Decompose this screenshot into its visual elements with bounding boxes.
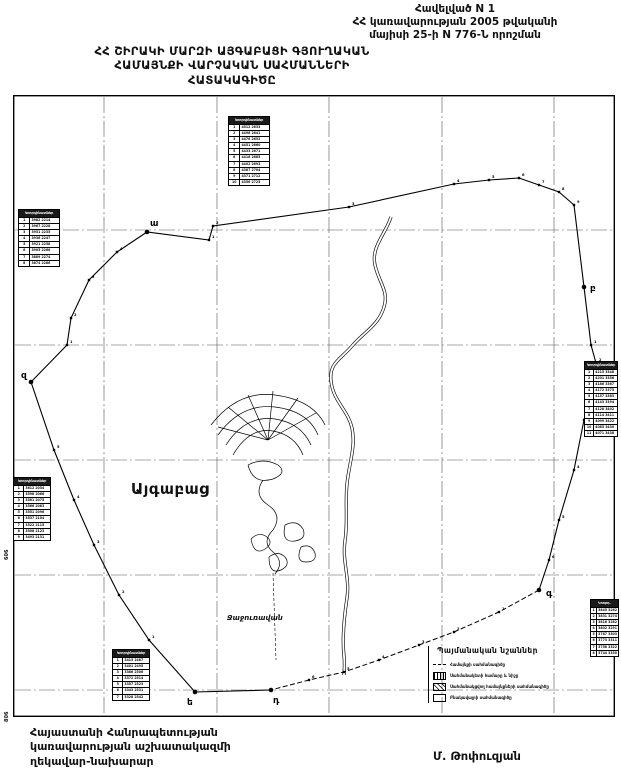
boundary-point-number: 2	[74, 313, 77, 317]
boundary-point-number: 1	[152, 635, 155, 639]
boundary-vertex-letter: բ	[590, 284, 596, 294]
boundary-point-number: 1	[212, 235, 215, 239]
boundary-point-number: 4	[577, 465, 580, 469]
legend-item-label: Բնակավայրի սահմանագիծը	[450, 695, 512, 700]
legend-item: Սահմանակցվող համայնքների սահմանագիծը	[433, 681, 617, 692]
boundary-point-number: 8	[562, 187, 565, 191]
boundary-point-number: 3	[92, 275, 95, 279]
boundary-vertex-letter: զ	[21, 371, 28, 381]
boundary-point-number: 6	[552, 555, 555, 559]
boundary-point-number: 1	[594, 340, 597, 344]
boundary-point-number: 4	[120, 247, 123, 251]
grid-coordinate-label: 806	[4, 712, 10, 722]
page-title-line2: ՀԱՄԱՅՆՔԻ ՎԱՐՉԱԿԱՆ ՍԱՀՄԱՆՆԵՐԻ	[58, 58, 406, 72]
boundary-point-number: 2	[216, 221, 219, 225]
coord-table: Կոորդինատներ13612 205423598 206633581 20…	[13, 477, 51, 541]
boundary-point-number: 6	[522, 173, 525, 177]
boundary-point-number: 5	[492, 175, 495, 179]
legend-item-label: Համայնքի սահմանագիծը	[450, 662, 505, 667]
boundary-point-number: 1	[70, 340, 73, 344]
signatory-title-line2: կառավարության աշխատակազմի	[30, 740, 231, 754]
coord-table: Կոորդինատներ14215 334824201 335634186 33…	[584, 361, 618, 437]
decree-header: Հավելված N 1 ՀՀ կառավարության 2005 թվակա…	[288, 3, 621, 41]
decree-header-line2: ՀՀ կառավարության 2005 թվականի	[288, 16, 621, 29]
grid-coordinate-label: 606	[4, 550, 10, 560]
map-svg: ա123456789բ123456գ123456դե12345զ1234	[13, 95, 615, 717]
boundary-point-number: 4	[77, 495, 80, 499]
page-title: ՀՀ ՇԻՐԱԿԻ ՄԱՐԶԻ ԱՅԳԱԲԱՑԻ ԳՅՈՒՂԱԿԱՆ ՀԱՄԱՅ…	[58, 44, 406, 87]
community-name-label: Այգաբաց	[131, 480, 209, 498]
boundary-point-number: 3	[422, 640, 425, 644]
boundary-point-number: 3	[97, 540, 100, 544]
coord-table: Կոորդինատներ14512 263324498 264134476 26…	[228, 116, 270, 186]
river	[331, 217, 391, 675]
boundary-vertex-letter: ե	[187, 698, 193, 708]
coordinate-grid	[15, 97, 613, 715]
legend-item-label: Սահմանակցվող համայնքների սահմանագիծը	[450, 684, 549, 689]
signatory-name: Մ. Թոփուզյան	[433, 749, 521, 763]
legend-title: Պայմանական նշաններ	[437, 646, 617, 655]
sym-boundary-point-icon	[433, 672, 446, 680]
boundary-vertex-letter: դ	[273, 696, 280, 706]
boundary-point-number: 5	[562, 515, 565, 519]
boundary-point-number: 4	[457, 179, 460, 183]
boundary-point-number: 2	[457, 627, 460, 631]
community-boundary: ա123456789բ123456գ123456դե12345զ1234	[21, 173, 602, 708]
decree-header-line1: Հավելված N 1	[288, 3, 621, 16]
boundary-point-number: 9	[577, 200, 580, 204]
page-title-line3: ՀԱՏԱԿԱԳԻԾԸ	[58, 73, 406, 87]
sym-settlement-outline-icon	[433, 694, 446, 702]
page-title-line1: ՀՀ ՇԻՐԱԿԻ ՄԱՐԶԻ ԱՅԳԱԲԱՑԻ ԳՅՈՒՂԱԿԱՆ	[58, 44, 406, 58]
coord-table: Կոորդինատներ13415 248723401 249533386 25…	[112, 649, 150, 701]
legend: Պայմանական նշաններ Համայնքի սահմանագիծըՍ…	[428, 646, 617, 703]
map-canvas: ա123456789բ123456գ123456դե12345զ1234	[13, 95, 615, 717]
legend-items: Համայնքի սահմանագիծըՍահմանակետի համարը և…	[433, 659, 617, 703]
coord-table: Կոորդինատներ13982 221423967 222833951 22…	[18, 209, 60, 267]
sym-boundary-line-icon	[433, 661, 446, 669]
decree-header-line3: մայիսի 25-ի N 776-Ն որոշման	[288, 29, 621, 42]
boundary-point-number: 7	[542, 180, 545, 184]
sym-adjacent-area-icon	[433, 683, 446, 691]
boundary-point-number: 2	[122, 590, 125, 594]
legend-item: Բնակավայրի սահմանագիծը	[433, 692, 617, 703]
neighbor-settlement-label: Ջաջուռավան	[227, 614, 283, 622]
signatory-title-line1: Հայաստանի Հանրապետության	[30, 726, 231, 740]
boundary-vertex-letter: ա	[150, 219, 158, 229]
boundary-vertex-letter: գ	[546, 589, 553, 599]
signatory-title-line3: ղեկավար-նախարար	[30, 755, 231, 769]
legend-item-label: Սահմանակետի համարը և նիշը	[450, 673, 518, 678]
boundary-point-number: 5	[57, 445, 60, 449]
signatory-title: Հայաստանի Հանրապետության կառավարության ա…	[30, 726, 231, 769]
legend-item: Համայնքի սահմանագիծը	[433, 659, 617, 670]
legend-item: Սահմանակետի համարը և նիշը	[433, 670, 617, 681]
